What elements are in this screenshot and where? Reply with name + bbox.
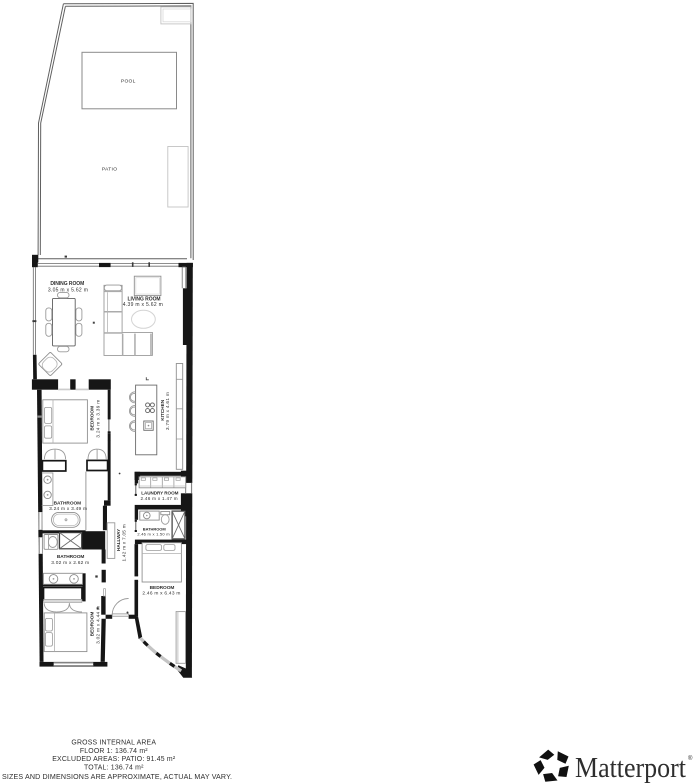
svg-text:4.39 m x 5.62 m: 4.39 m x 5.62 m bbox=[123, 302, 163, 308]
svg-text:POOL: POOL bbox=[121, 79, 136, 85]
svg-text:LAUNDRY ROOM: LAUNDRY ROOM bbox=[141, 490, 178, 495]
svg-text:KITCHEN: KITCHEN bbox=[160, 399, 166, 421]
svg-text:Matterport: Matterport bbox=[575, 753, 686, 784]
svg-text:GROSS INTERNAL AREA: GROSS INTERNAL AREA bbox=[71, 740, 156, 747]
svg-text:SIZES AND DIMENSIONS ARE APPRO: SIZES AND DIMENSIONS ARE APPROXIMATE, AC… bbox=[2, 773, 232, 781]
svg-text:BEDROOM: BEDROOM bbox=[89, 612, 95, 637]
svg-text:BATHROOM: BATHROOM bbox=[57, 554, 85, 560]
svg-text:PATIO: PATIO bbox=[102, 167, 117, 173]
svg-text:EXCLUDED AREAS: PATIO: 91.45 m: EXCLUDED AREAS: PATIO: 91.45 m² bbox=[52, 756, 176, 763]
svg-text:3.24 m x 3.49 m: 3.24 m x 3.49 m bbox=[49, 506, 87, 512]
svg-text:3.02 m x 4.44 m: 3.02 m x 4.44 m bbox=[95, 606, 101, 644]
svg-text:®: ® bbox=[688, 755, 693, 762]
svg-text:2.46 m x 6.43 m: 2.46 m x 6.43 m bbox=[142, 591, 180, 597]
svg-text:BEDROOM: BEDROOM bbox=[150, 585, 175, 591]
svg-text:2.46 m x 1.47 m: 2.46 m x 1.47 m bbox=[140, 496, 177, 501]
svg-text:2.46 m x 1.50 m: 2.46 m x 1.50 m bbox=[137, 531, 170, 536]
svg-text:1.42 m x 7.05 m: 1.42 m x 7.05 m bbox=[121, 524, 126, 561]
svg-text:FLOOR 1: 136.74 m²: FLOOR 1: 136.74 m² bbox=[80, 748, 148, 755]
svg-text:3.24 m x 3.39 m: 3.24 m x 3.39 m bbox=[96, 400, 102, 438]
svg-text:BATHROOM: BATHROOM bbox=[54, 501, 82, 507]
svg-text:DINING ROOM: DINING ROOM bbox=[50, 281, 84, 287]
svg-text:TOTAL: 136.74 m²: TOTAL: 136.74 m² bbox=[84, 764, 144, 771]
svg-text:3.02 m x 2.62 m: 3.02 m x 2.62 m bbox=[51, 560, 89, 566]
svg-text:BEDROOM: BEDROOM bbox=[89, 406, 95, 431]
svg-text:HALLWAY: HALLWAY bbox=[116, 528, 121, 551]
svg-text:3.79 m x 4.61 m: 3.79 m x 4.61 m bbox=[165, 392, 171, 430]
